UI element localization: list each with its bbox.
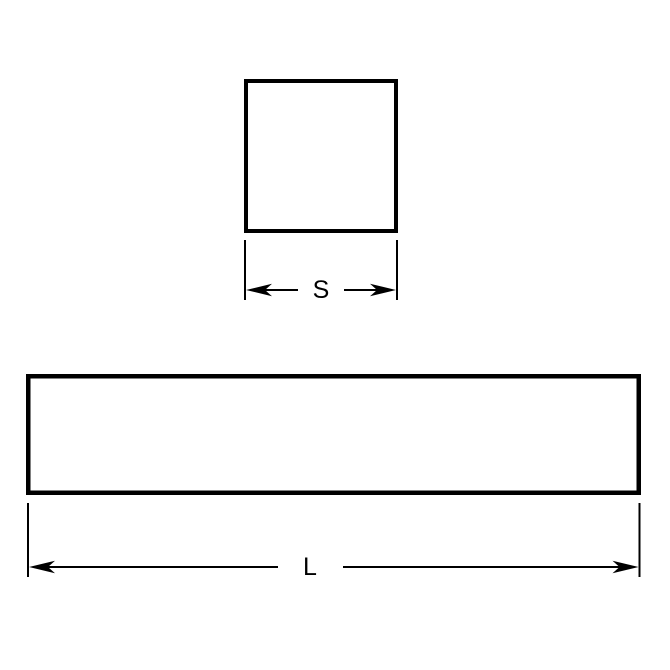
keysteel-dimension-diagram: S L: [0, 0, 670, 670]
bar-length-outline: [28, 376, 639, 493]
diagram-canvas: S L: [0, 0, 670, 670]
square-cross-section-outline: [246, 81, 396, 231]
s-dimension-label: S: [313, 276, 330, 304]
l-dimension-label: L: [303, 553, 317, 581]
